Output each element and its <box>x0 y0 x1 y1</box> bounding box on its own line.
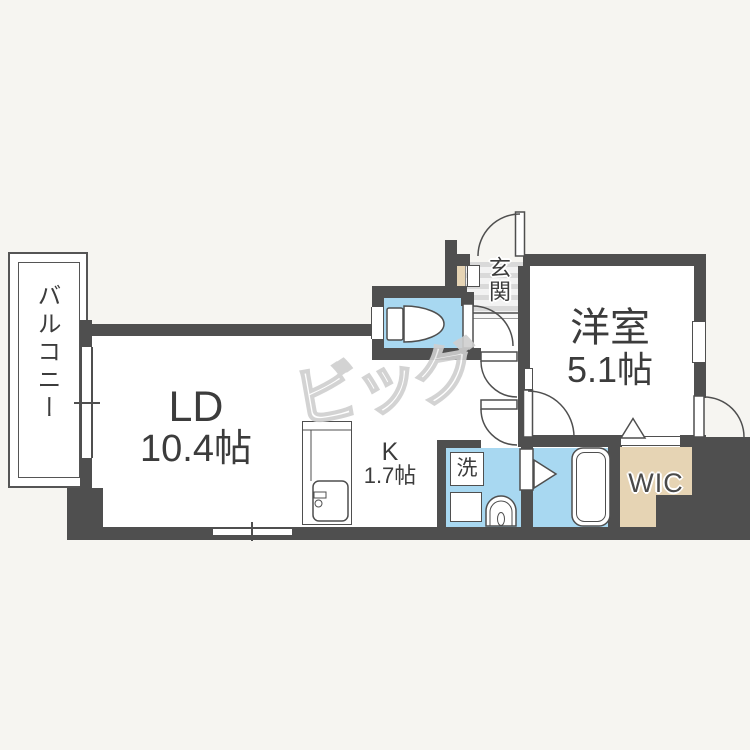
bath-folding-door-icon <box>534 460 556 488</box>
western-door-arc <box>528 391 574 437</box>
washroom-door-arc <box>481 409 517 445</box>
kitchen-size-label: 1.7帖 <box>352 465 428 487</box>
floor-plan: ビッグ バルコニー LD 10.4帖 K 1.7帖 玄関 洋室 5.1帖 WIC… <box>0 0 750 750</box>
western-room-size-label: 5.1帖 <box>540 352 680 388</box>
wic-label: WIC <box>618 470 694 497</box>
washbasin-drain <box>498 513 505 526</box>
entrance-door-arc <box>478 214 520 256</box>
western-room-label: 洋室 <box>540 308 680 348</box>
bath-door-leaf <box>520 449 533 490</box>
kitchen-faucet <box>314 492 326 498</box>
western-door-leaf <box>524 390 533 437</box>
ld-label: LD <box>126 386 266 429</box>
entrance-door-leaf <box>516 212 525 256</box>
balcony-label: バルコニー <box>34 283 58 423</box>
wic-folding-door-icon <box>621 419 645 439</box>
entrance-label: 玄関 <box>487 256 509 304</box>
laundry-label: 洗 <box>450 458 484 479</box>
bathtub <box>572 448 610 526</box>
kitchen-knob <box>315 500 322 507</box>
right-door-arc <box>704 397 744 437</box>
right-door-leaf <box>694 396 704 437</box>
kitchen-label: K <box>355 440 425 465</box>
ld-size-label: 10.4帖 <box>106 430 286 468</box>
